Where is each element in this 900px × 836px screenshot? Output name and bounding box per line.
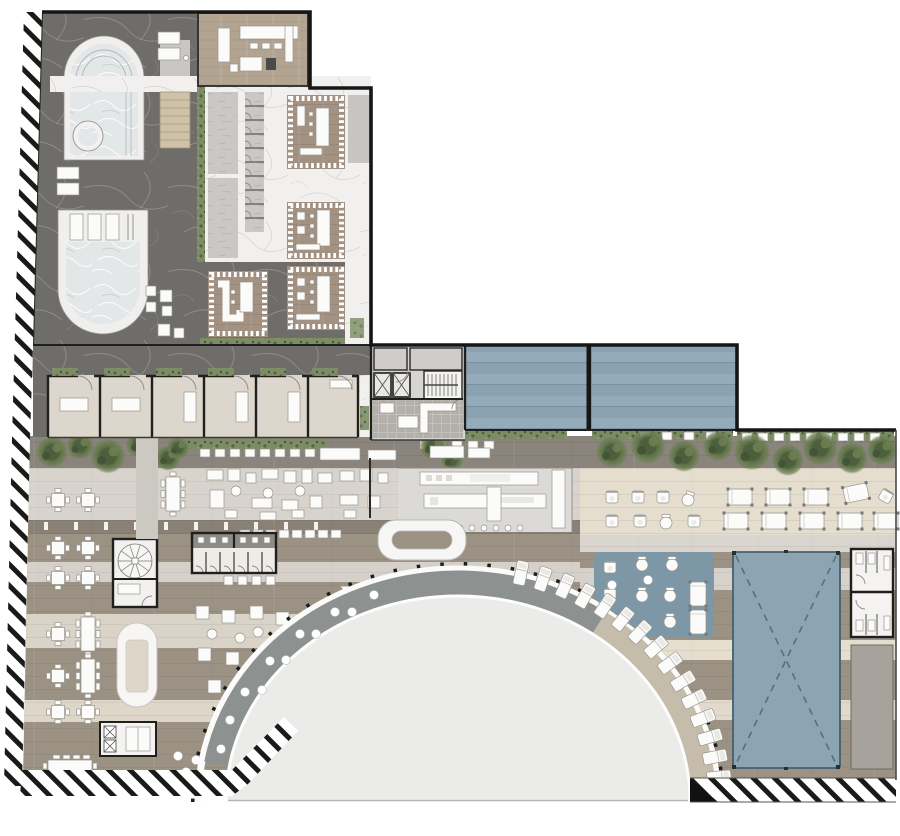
corridor-and-cabanas	[32, 345, 371, 438]
skylight-panel-2	[592, 345, 737, 430]
gray-service-strip	[851, 645, 893, 769]
upper-lounge-room	[198, 13, 308, 86]
spiral-stair-room	[113, 539, 157, 607]
service-path	[136, 438, 158, 539]
treatment-room-3	[287, 266, 345, 330]
u-pool	[58, 210, 148, 334]
round-tub	[73, 121, 103, 151]
skylight-panel-1	[465, 345, 588, 430]
treatment-room-1	[287, 95, 345, 169]
hatch-south-west	[20, 770, 232, 796]
stair	[424, 371, 462, 399]
skylight-panels	[465, 345, 737, 430]
treatment-room-4	[208, 271, 268, 337]
tatami-room	[160, 92, 190, 148]
vertical-core	[371, 345, 465, 440]
pool-canopy	[732, 550, 840, 770]
bar-counter	[378, 520, 466, 560]
service-counter	[100, 722, 156, 756]
treatment-room-2	[287, 202, 345, 259]
rounded-planter	[117, 623, 157, 707]
right-wc-cells	[851, 549, 893, 769]
hatch-south-east	[690, 778, 896, 802]
planting-patch	[350, 318, 364, 338]
balcony	[348, 95, 371, 163]
floor-plan-drawing	[0, 0, 900, 836]
floor-plan-page	[0, 0, 900, 836]
wc-block	[192, 533, 276, 573]
planting-strip-south	[200, 338, 345, 345]
